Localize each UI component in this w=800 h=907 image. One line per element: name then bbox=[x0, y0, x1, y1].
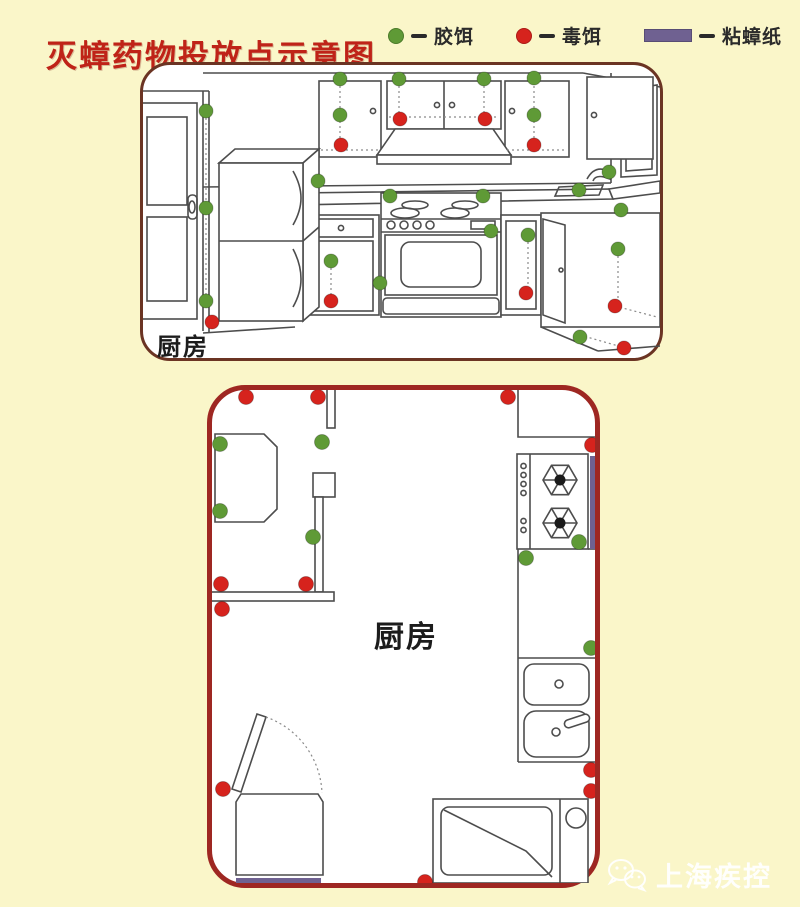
poison-bait-dot bbox=[501, 390, 516, 405]
poison-bait-dot bbox=[214, 577, 229, 592]
range bbox=[381, 193, 501, 317]
poison-bait-dot bbox=[527, 138, 541, 152]
poison-bait-dot bbox=[393, 112, 407, 126]
kitchen-perspective-panel: 厨房 bbox=[140, 62, 663, 361]
counter-right-mid bbox=[518, 549, 595, 658]
gel-bait-dot bbox=[476, 189, 490, 203]
range-hood bbox=[377, 129, 511, 164]
sink-plan bbox=[518, 658, 595, 762]
poison-bait-dot bbox=[608, 299, 622, 313]
poison-bait-dot bbox=[239, 390, 254, 405]
poison-bait-dot bbox=[585, 438, 596, 453]
base-cabinet-right bbox=[501, 215, 541, 315]
poison-bait-dot bbox=[617, 341, 631, 355]
gel-bait-dot bbox=[477, 72, 491, 86]
gel-bait-dot bbox=[527, 108, 541, 122]
entry-door-plan bbox=[232, 714, 323, 875]
legend-dash bbox=[699, 34, 715, 38]
gel-bait-dot bbox=[572, 535, 587, 550]
gel-bait-dot bbox=[572, 183, 586, 197]
gel-bait-dot bbox=[573, 330, 587, 344]
poison-bait-dot bbox=[215, 602, 230, 617]
legend-item-sticky-paper: 粘蟑纸 bbox=[644, 22, 782, 49]
poison-bait-dot-icon bbox=[516, 28, 532, 44]
gel-bait-dot bbox=[333, 108, 347, 122]
legend-item-poison-bait: 毒饵 bbox=[516, 22, 602, 49]
gel-bait-dot bbox=[584, 641, 596, 656]
legend-label: 毒饵 bbox=[562, 22, 602, 49]
legend-item-gel-bait: 胶饵 bbox=[388, 22, 474, 49]
gel-bait-dot bbox=[392, 72, 406, 86]
legend: 胶饵 毒饵 粘蟑纸 bbox=[388, 22, 782, 49]
door bbox=[143, 91, 209, 333]
legend-dash bbox=[411, 34, 427, 38]
wechat-icon bbox=[606, 857, 648, 893]
gel-bait-dot bbox=[324, 254, 338, 268]
poison-bait-dot bbox=[334, 138, 348, 152]
gel-bait-dot bbox=[199, 294, 213, 308]
watermark-label: 上海疾控 bbox=[656, 855, 772, 894]
legend-label: 粘蟑纸 bbox=[722, 22, 782, 49]
gel-bait-dot bbox=[213, 504, 228, 519]
sticky-paper-strip bbox=[236, 878, 321, 883]
gel-bait-dot bbox=[527, 71, 541, 85]
poison-bait-dot bbox=[418, 875, 433, 884]
room-label-kitchen: 厨房 bbox=[374, 612, 438, 656]
gel-bait-dot bbox=[333, 72, 347, 86]
poison-bait-dot bbox=[519, 286, 533, 300]
legend-dash bbox=[539, 34, 555, 38]
kitchen-floorplan-panel: 厨房 bbox=[207, 385, 600, 888]
refrigerator bbox=[219, 149, 319, 321]
washer-plan bbox=[433, 799, 588, 883]
gel-bait-dot bbox=[521, 228, 535, 242]
poison-bait-dot bbox=[478, 112, 492, 126]
poster: 灭蟑药物投放点示意图 胶饵 毒饵 粘蟑纸 bbox=[0, 0, 800, 907]
poison-bait-dot bbox=[299, 577, 314, 592]
poison-bait-dot bbox=[584, 784, 596, 799]
sticky-paper-strip bbox=[590, 456, 595, 549]
gel-bait-dot bbox=[373, 276, 387, 290]
gel-bait-dot bbox=[611, 242, 625, 256]
poison-bait-dot bbox=[311, 390, 326, 405]
poison-bait-dot bbox=[584, 763, 596, 778]
sink-cabinet bbox=[541, 213, 660, 327]
floor-lines bbox=[203, 327, 660, 351]
gel-bait-dot bbox=[614, 203, 628, 217]
stove-plan bbox=[517, 454, 595, 549]
kitchen-perspective-drawing bbox=[143, 65, 660, 358]
gel-bait-dot bbox=[199, 201, 213, 215]
poison-bait-dot bbox=[216, 782, 231, 797]
gel-bait-dot bbox=[383, 189, 397, 203]
gel-bait-dot bbox=[213, 437, 228, 452]
gel-bait-dot bbox=[519, 551, 534, 566]
sticky-paper-bar-icon bbox=[644, 29, 692, 42]
room-label-kitchen: 厨房 bbox=[157, 327, 209, 362]
gel-bait-dot-icon bbox=[388, 28, 404, 44]
counter-top-right bbox=[518, 390, 595, 437]
gel-bait-dot bbox=[315, 435, 330, 450]
gel-bait-dot bbox=[311, 174, 325, 188]
gel-bait-dot bbox=[199, 104, 213, 118]
gel-bait-dot bbox=[306, 530, 321, 545]
legend-label: 胶饵 bbox=[434, 22, 474, 49]
watermark: 上海疾控 bbox=[606, 855, 772, 894]
gel-bait-dot bbox=[484, 224, 498, 238]
poison-bait-dot bbox=[324, 294, 338, 308]
gel-bait-dot bbox=[602, 165, 616, 179]
